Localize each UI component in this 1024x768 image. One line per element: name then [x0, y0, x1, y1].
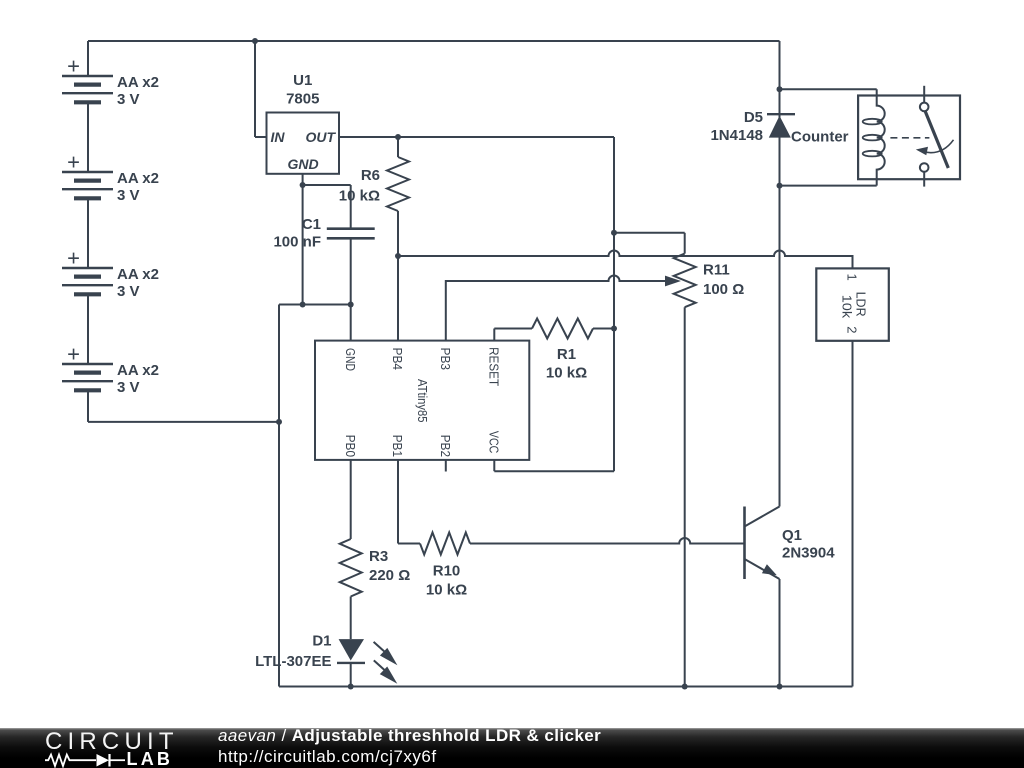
svg-text:RESET: RESET [487, 347, 502, 386]
svg-text:PB4: PB4 [390, 348, 405, 371]
svg-text:R10: R10 [433, 563, 461, 580]
svg-text:R11: R11 [703, 262, 730, 279]
svg-text:PB3: PB3 [438, 348, 453, 371]
svg-text:AA x2: AA x2 [117, 170, 159, 187]
svg-text:PB1: PB1 [390, 435, 405, 458]
svg-text:7805: 7805 [286, 91, 319, 108]
svg-text:3 V: 3 V [117, 283, 140, 300]
svg-text:10 kΩ: 10 kΩ [339, 188, 380, 205]
svg-text:100 Ω: 100 Ω [703, 281, 744, 298]
svg-text:1: 1 [845, 274, 860, 281]
svg-text:3 V: 3 V [117, 379, 140, 396]
svg-text:LTL-307EE: LTL-307EE [255, 653, 331, 670]
svg-text:3 V: 3 V [117, 187, 140, 204]
svg-text:R1: R1 [557, 346, 576, 363]
svg-text:R3: R3 [369, 548, 388, 565]
svg-text:+: + [67, 246, 80, 271]
svg-text:C1: C1 [302, 216, 321, 233]
svg-text:D1: D1 [312, 633, 331, 650]
svg-text:ATtiny85: ATtiny85 [415, 379, 430, 423]
svg-text:+: + [67, 150, 80, 175]
svg-text:PB0: PB0 [343, 435, 358, 458]
svg-text:LDR: LDR [854, 292, 869, 317]
svg-text:1N4148: 1N4148 [710, 127, 763, 144]
svg-text:220 Ω: 220 Ω [369, 567, 410, 584]
svg-text:IN: IN [271, 129, 286, 145]
svg-text:+: + [67, 342, 80, 367]
svg-text:AA x2: AA x2 [117, 266, 159, 283]
svg-text:GND: GND [287, 156, 318, 172]
svg-text:U1: U1 [293, 72, 312, 89]
svg-text:PB2: PB2 [438, 435, 453, 458]
svg-text:10 kΩ: 10 kΩ [426, 582, 467, 599]
svg-text:2: 2 [845, 326, 860, 333]
svg-text:OUT: OUT [305, 129, 336, 145]
svg-text:10 kΩ: 10 kΩ [546, 365, 587, 382]
svg-text:AA x2: AA x2 [117, 74, 159, 91]
svg-text:D5: D5 [744, 109, 763, 126]
svg-text:VCC: VCC [487, 431, 502, 453]
svg-text:Q1: Q1 [782, 527, 802, 544]
svg-text:Counter: Counter [791, 129, 849, 146]
svg-text:10k: 10k [840, 295, 855, 319]
svg-text:100 nF: 100 nF [273, 234, 321, 251]
svg-text:2N3904: 2N3904 [782, 545, 835, 562]
svg-text:+: + [67, 54, 80, 79]
svg-text:3 V: 3 V [117, 91, 140, 108]
svg-text:AA x2: AA x2 [117, 362, 159, 379]
svg-text:GND: GND [343, 348, 358, 371]
svg-text:R6: R6 [361, 167, 380, 184]
